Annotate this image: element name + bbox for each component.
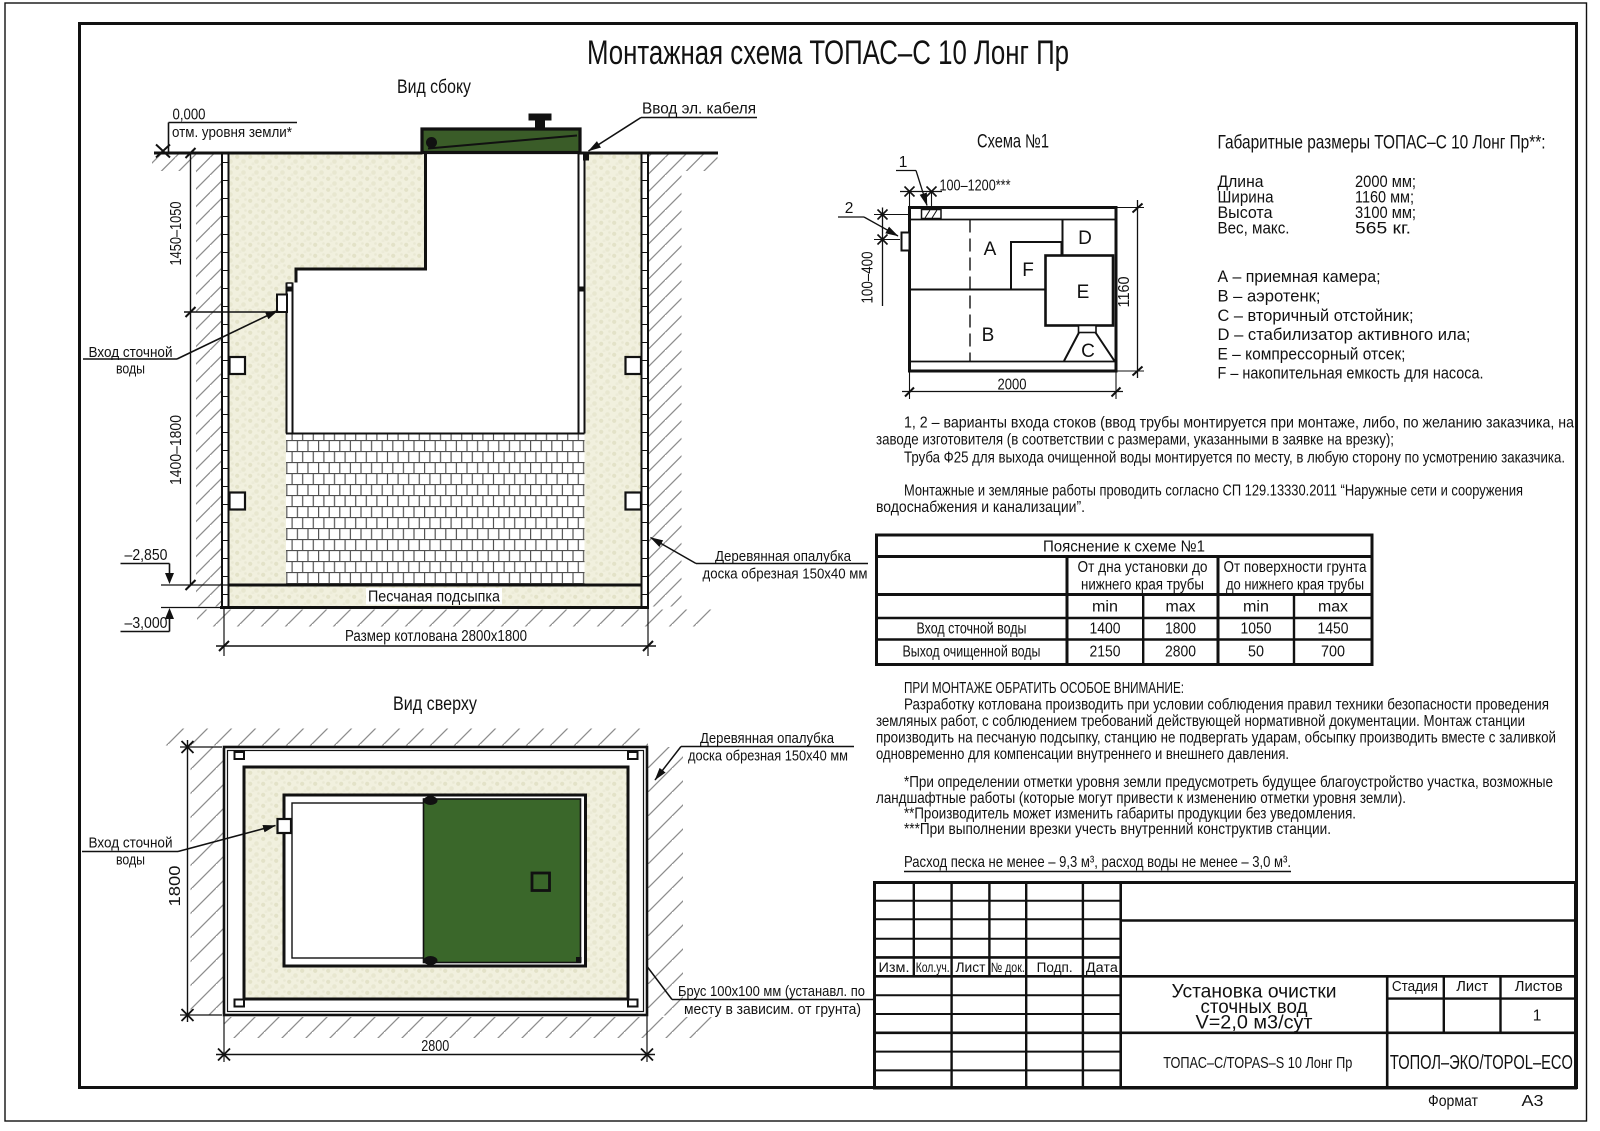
svg-text:A: A [984,239,997,260]
svg-text:1450: 1450 [1318,621,1349,638]
svg-text:Деревянная опалубка: Деревянная опалубка [700,731,835,747]
svg-text:F – накопительная емкость для: F – накопительная емкость для насоса. [1218,365,1484,383]
svg-text:2800: 2800 [1165,644,1196,661]
svg-text:Разработку котлована производи: Разработку котлована производить при усл… [904,697,1549,714]
svg-text:Вход сточной: Вход сточной [89,835,173,852]
svg-text:1800: 1800 [1165,621,1196,638]
svg-text:B: B [982,325,995,346]
svg-text:Вид сверху: Вид сверху [393,694,477,715]
svg-text:E: E [1077,282,1090,303]
svg-text:E – компрессорный отсек;: E – компрессорный отсек; [1218,345,1406,363]
svg-text:F: F [1022,260,1034,281]
svg-text:2800: 2800 [421,1038,449,1055]
svg-text:ТОПОЛ–ЭКО/TOPOL–ECO: ТОПОЛ–ЭКО/TOPOL–ECO [1390,1051,1573,1074]
svg-text:min: min [1092,599,1118,616]
svg-text:D: D [1078,228,1092,249]
svg-text:Размер котлована 2800х1800: Размер котлована 2800х1800 [345,628,527,645]
svg-text:Пояснение к схеме №1: Пояснение к схеме №1 [1043,539,1205,556]
svg-text:ТОПАС–С/TOPAS–S 10 Лонг Пр: ТОПАС–С/TOPAS–S 10 Лонг Пр [1163,1055,1352,1072]
svg-text:Деревянная опалубка: Деревянная опалубка [715,549,852,565]
svg-text:1160: 1160 [1116,276,1133,307]
svg-text:ландшафтные работы (которые мо: ландшафтные работы (которые могут привес… [876,790,1406,807]
svg-text:Труба Ф25 для выхода очищенной: Труба Ф25 для выхода очищенной воды монт… [904,450,1565,467]
svg-text:воды: воды [116,852,145,869]
svg-text:№ док.: № док. [991,960,1025,975]
svg-text:1: 1 [899,154,908,171]
svg-text:до нижнего края трубы: до нижнего края трубы [1226,577,1364,594]
svg-text:От поверхности грунта: От поверхности грунта [1224,559,1367,576]
svg-text:max: max [1166,599,1196,616]
svg-text:–2,850: –2,850 [125,547,168,564]
svg-text:**Производитель может изменить: **Производитель может изменить габариты … [904,806,1356,823]
svg-text:производить на песчаную подсып: производить на песчаную подсыпку, станци… [876,730,1556,747]
svg-text:*При определении отметки уровн: *При определении отметки уровня земли пр… [904,774,1553,791]
svg-text:воды: воды [116,361,145,378]
svg-text:водоснабжения и канализации”.: водоснабжения и канализации”. [876,499,1085,516]
svg-text:0,000: 0,000 [173,107,206,124]
svg-text:Песчаная подсыпка: Песчаная подсыпка [368,589,500,606]
svg-text:700: 700 [1321,644,1345,661]
svg-text:доска обрезная 150х40 мм: доска обрезная 150х40 мм [703,567,868,583]
svg-text:Дата: Дата [1086,960,1119,975]
svg-text:Лист: Лист [956,960,986,975]
svg-text:Схема №1: Схема №1 [977,132,1049,153]
svg-text:1400–1800: 1400–1800 [168,415,185,485]
svg-text:Ввод эл. кабеля: Ввод эл. кабеля [642,101,756,118]
svg-text:565 кг.: 565 кг. [1355,220,1411,238]
svg-text:Вход сточной воды: Вход сточной воды [917,621,1027,638]
svg-text:В – аэротенк;: В – аэротенк; [1218,288,1321,306]
svg-text:1050: 1050 [1241,621,1272,638]
svg-text:Вес, макс.: Вес, макс. [1218,220,1290,238]
svg-text:Брус 100х100 мм (устанавл. по: Брус 100х100 мм (устанавл. по [678,984,865,1000]
svg-text:***При выполнении врезки учест: ***При выполнении врезки учесть внутренн… [904,821,1331,838]
svg-text:доска обрезная 150х40 мм: доска обрезная 150х40 мм [688,749,848,765]
svg-text:Изм.: Изм. [879,960,910,975]
svg-text:От дна установки до: От дна установки до [1078,559,1208,576]
svg-text:Монтажные и земляные работы пр: Монтажные и земляные работы проводить со… [904,483,1523,500]
svg-text:А3: А3 [1522,1093,1544,1110]
svg-text:100–400: 100–400 [860,251,877,303]
svg-text:C: C [1081,341,1095,362]
svg-text:max: max [1318,599,1348,616]
svg-text:Стадия: Стадия [1392,978,1438,995]
svg-text:Габаритные размеры ТОПАС–С 10: Габаритные размеры ТОПАС–С 10 Лонг Пр**: [1218,132,1546,154]
svg-text:Вид сбоку: Вид сбоку [397,77,471,98]
svg-text:100–1200***: 100–1200*** [940,178,1011,195]
svg-text:Выход очищенной воды: Выход очищенной воды [903,644,1041,661]
svg-text:нижнего края трубы: нижнего края трубы [1081,577,1204,594]
svg-text:D – стабилизатор активного ила: D – стабилизатор активного ила; [1218,326,1471,344]
svg-text:ПРИ МОНТАЖЕ ОБРАТИТЬ ОСОБОЕ ВН: ПРИ МОНТАЖЕ ОБРАТИТЬ ОСОБОЕ ВНИМАНИЕ: [904,680,1184,697]
svg-text:1450–1050: 1450–1050 [168,201,185,265]
svg-text:2: 2 [845,200,854,217]
svg-text:2150: 2150 [1090,644,1121,661]
svg-text:Подп.: Подп. [1037,960,1073,975]
svg-text:Кол.уч.: Кол.уч. [916,960,950,975]
svg-text:1800: 1800 [167,865,184,906]
svg-text:50: 50 [1248,644,1264,661]
svg-text:А – приемная камера;: А – приемная камера; [1218,268,1381,286]
svg-text:одновременно для компенсации в: одновременно для компенсации внутреннего… [876,746,1289,763]
svg-text:1: 1 [1533,1008,1542,1025]
svg-text:Листов: Листов [1515,978,1563,995]
svg-text:V=2,0 м3/сут: V=2,0 м3/сут [1196,1013,1313,1034]
svg-text:С – вторичный отстойник;: С – вторичный отстойник; [1218,307,1414,325]
svg-text:min: min [1243,599,1269,616]
svg-text:Лист: Лист [1456,978,1488,995]
svg-text:заводе изготовителя (в соответ: заводе изготовителя (в соответствии с ра… [876,432,1394,449]
svg-text:2000: 2000 [998,377,1027,394]
svg-text:земляных работ, с соблюдением: земляных работ, с соблюдением требований… [876,713,1525,730]
svg-text:отм. уровня земли*: отм. уровня земли* [172,125,292,141]
svg-text:Формат: Формат [1428,1093,1478,1110]
svg-text:–3,000: –3,000 [125,615,168,632]
svg-text:месту в зависим. от грунта): месту в зависим. от грунта) [684,1002,861,1018]
svg-text:Расход песка не менее – 9,3 м³: Расход песка не менее – 9,3 м³, расход в… [904,854,1291,871]
svg-text:1, 2 – варианты входа стоков: 1, 2 – варианты входа стоков (ввод трубы… [904,415,1574,432]
svg-text:1400: 1400 [1090,621,1121,638]
svg-text:Монтажная схема ТОПАС–С 10 Лон: Монтажная схема ТОПАС–С 10 Лонг Пр [587,34,1069,72]
